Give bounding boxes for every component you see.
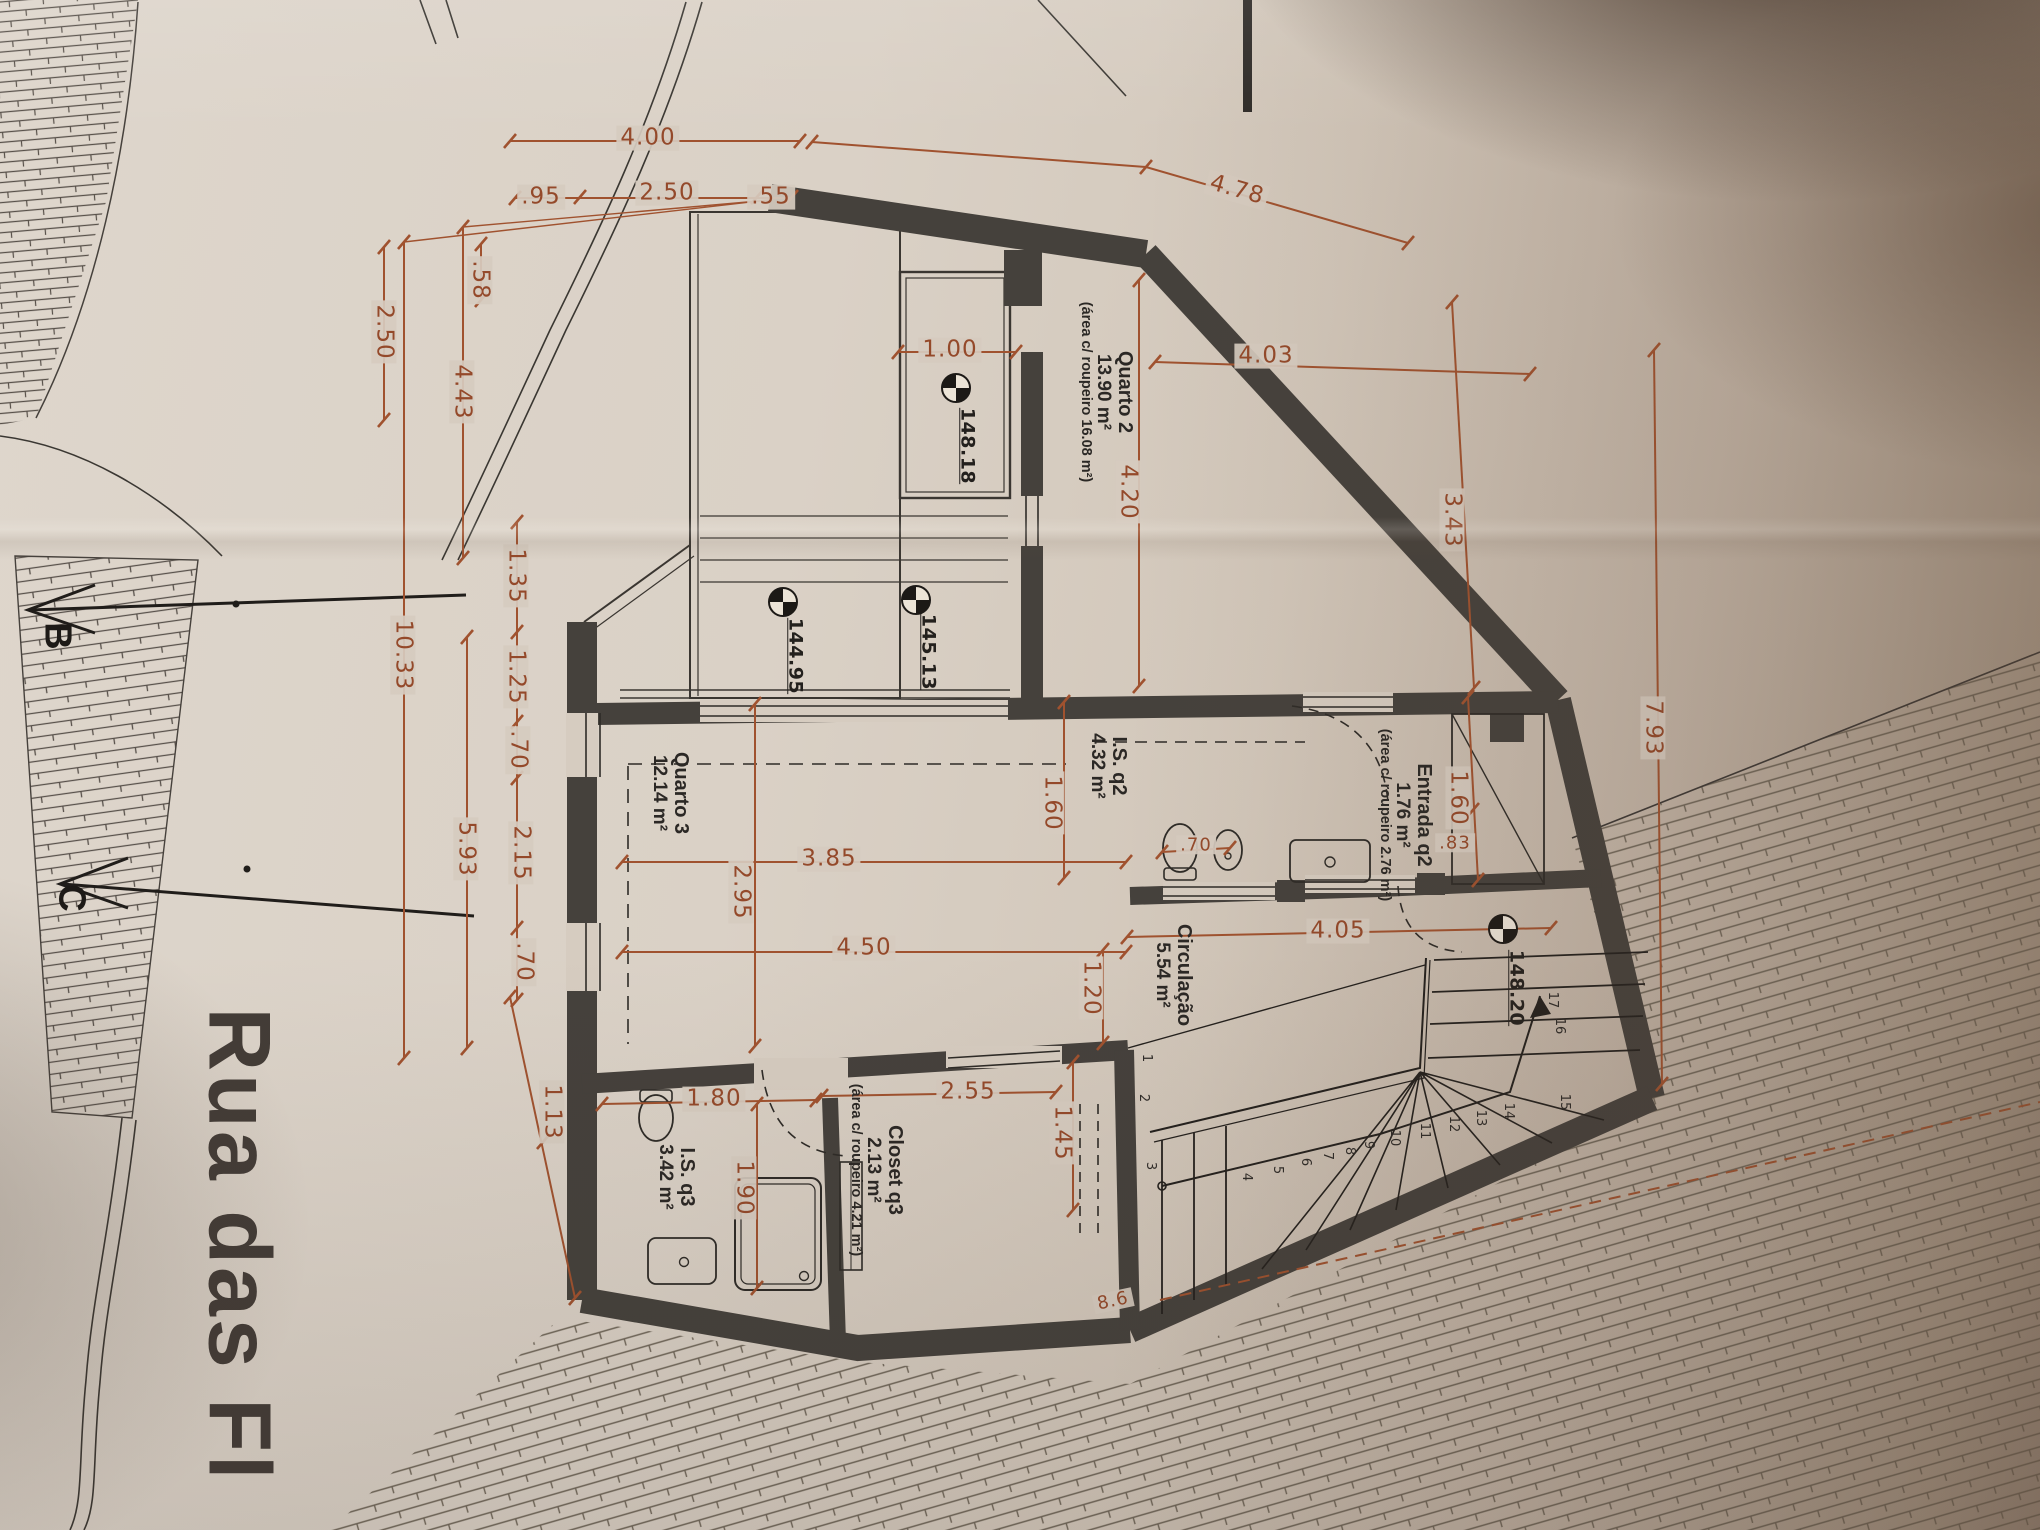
dimension-label: .83 [1435, 833, 1475, 852]
dimension-label: 4.78 [1203, 169, 1271, 210]
dimension-label: 1.45 [1050, 1101, 1075, 1164]
dimension-label: 4.05 [1306, 919, 1369, 944]
dimension-label: 2.50 [635, 181, 698, 206]
dimension-label: 1.20 [1079, 956, 1104, 1019]
dimension-label: 2.95 [729, 860, 754, 923]
level-marker-icon [901, 585, 931, 615]
dimension-label: 4.43 [450, 360, 475, 423]
annotation-layer: 4.00.952.50.554.78.582.504.4310.331.351.… [0, 0, 2040, 1530]
stair-tread-number: 17 [1545, 992, 1559, 1009]
dimension-label: .95 [517, 185, 565, 210]
street-name: Rua das Fl [192, 1008, 287, 1483]
level-label: 148.20 [1506, 950, 1527, 1026]
level-marker-icon [1488, 914, 1518, 944]
room-area: 2.13 m² [863, 1084, 884, 1256]
dimension-label: 1.35 [504, 544, 529, 607]
stair-tread-number: 11 [1417, 1123, 1431, 1140]
dimension-label: 4.50 [832, 936, 895, 961]
dimension-label: 4.03 [1234, 344, 1297, 369]
level-label: 144.95 [785, 618, 806, 694]
dimension-label: 4.00 [616, 126, 679, 151]
room-name: Circulação [1172, 924, 1194, 1026]
dimension-label: 5.93 [454, 817, 479, 880]
room-label-closet-q3: Closet q32.13 m²(área c/ roupeiro 4.21 m… [847, 1084, 905, 1256]
room-area: 13.90 m² [1093, 302, 1114, 483]
dimension-label: 1.25 [504, 645, 529, 708]
room-name: Closet q3 [883, 1084, 905, 1256]
stair-tread-number: 12 [1446, 1116, 1460, 1133]
stair-tread-number: 9 [1361, 1141, 1375, 1149]
stair-tread-number: 10 [1387, 1130, 1401, 1147]
section-letter-c: C [50, 884, 91, 911]
room-label-is-q2: I.S. q24.32 m² [1087, 733, 1129, 798]
room-name: Quarto 3 [669, 752, 691, 834]
dimension-label: 7.93 [1641, 696, 1666, 759]
room-area: 3.42 m² [655, 1144, 676, 1209]
level-label: 148.18 [957, 408, 978, 484]
room-area: 12.14 m² [649, 752, 670, 834]
level-label: 145.13 [918, 614, 939, 690]
floor-plan-photo: 4.00.952.50.554.78.582.504.4310.331.351.… [0, 0, 2040, 1530]
room-label-circulacao: Circulação5.54 m² [1152, 924, 1194, 1026]
dimension-label: .70 [512, 938, 537, 986]
stair-tread-number: 15 [1557, 1094, 1571, 1111]
stair-tread-number: 4 [1239, 1173, 1253, 1181]
dimension-label: 3.85 [797, 847, 860, 872]
room-area-note: (área c/ roupeiro 2.76 m²) [1376, 729, 1392, 901]
dimension-label: .70 [506, 726, 531, 774]
room-label-is-q3: I.S. q33.42 m² [655, 1144, 697, 1209]
stair-tread-number: 13 [1473, 1110, 1487, 1127]
stair-tread-number: 6 [1298, 1158, 1312, 1166]
room-label-quarto-2: Quarto 213.90 m²(área c/ roupeiro 16.08 … [1077, 302, 1135, 483]
room-area-note: (área c/ roupeiro 16.08 m²) [1077, 302, 1093, 483]
dimension-label: 1.00 [918, 338, 981, 363]
room-name: I.S. q2 [1107, 733, 1129, 798]
room-area: 1.76 m² [1392, 729, 1413, 901]
stair-tread-number: 2 [1136, 1094, 1150, 1102]
dimension-label: 10.33 [391, 616, 416, 695]
room-label-entrada-q2: Entrada q21.76 m²(área c/ roupeiro 2.76 … [1376, 729, 1434, 901]
stair-tread-number: 14 [1501, 1103, 1515, 1120]
level-marker-icon [941, 373, 971, 403]
dimension-label: 2.50 [372, 300, 397, 363]
stair-tread-number: 8 [1342, 1147, 1356, 1155]
stair-tread-number: 1 [1139, 1054, 1153, 1062]
level-marker-icon [768, 587, 798, 617]
room-name: Quarto 2 [1113, 302, 1135, 483]
dimension-label: 1.13 [540, 1080, 565, 1143]
dimension-label: 1.60 [1446, 766, 1471, 829]
room-area: 4.32 m² [1087, 733, 1108, 798]
room-name: Entrada q2 [1412, 729, 1434, 901]
dimension-label: .70 [1176, 835, 1216, 854]
dimension-label: 1.90 [732, 1156, 757, 1219]
dimension-label: .58 [468, 256, 493, 304]
room-name: I.S. q3 [675, 1144, 697, 1209]
stair-tread-number: 3 [1143, 1162, 1157, 1170]
dimension-label: 2.55 [936, 1080, 999, 1105]
room-label-quarto-3: Quarto 312.14 m² [649, 752, 691, 834]
dimension-label: 1.60 [1040, 771, 1065, 834]
room-area-note: (área c/ roupeiro 4.21 m²) [847, 1084, 863, 1256]
dimension-label: 3.43 [1440, 488, 1465, 551]
dimension-label: 1.80 [682, 1087, 745, 1112]
dimension-label: 2.15 [509, 821, 534, 884]
room-area: 5.54 m² [1152, 924, 1173, 1026]
section-letter-b: B [36, 622, 77, 649]
dimension-label: 8.6 [1092, 1287, 1135, 1314]
stair-tread-number: 16 [1552, 1018, 1566, 1035]
stair-tread-number: 5 [1270, 1166, 1284, 1174]
stair-tread-number: 7 [1320, 1152, 1334, 1160]
dimension-label: .55 [747, 185, 795, 210]
